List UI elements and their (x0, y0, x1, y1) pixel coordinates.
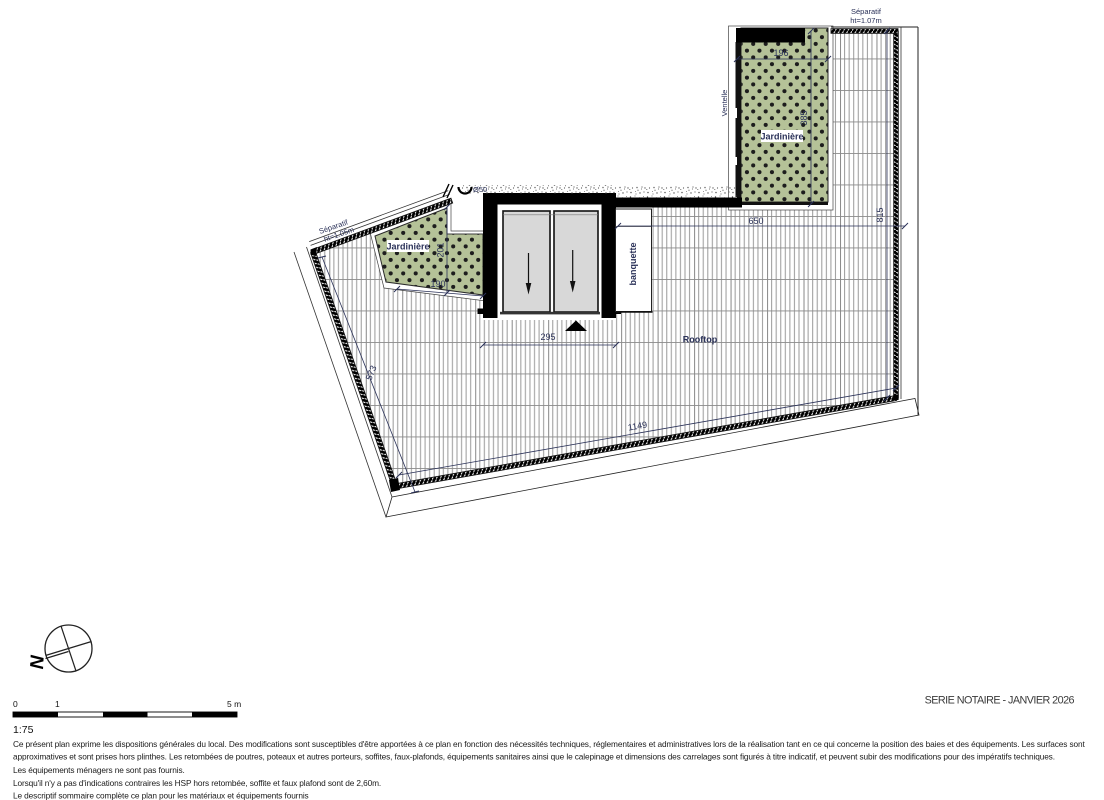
svg-text:295: 295 (540, 332, 555, 342)
svg-text:Ce présent plan exprime les di: Ce présent plan exprime les dispositions… (13, 739, 1085, 749)
svg-text:SERIE NOTAIRE - JANVIER 2026: SERIE NOTAIRE - JANVIER 2026 (925, 695, 1075, 707)
svg-text:Les équipements ménagers ne so: Les équipements ménagers ne sont pas fou… (13, 765, 185, 775)
svg-text:banquette: banquette (628, 242, 638, 285)
svg-text:385: 385 (799, 110, 809, 125)
svg-text:650: 650 (748, 216, 763, 226)
svg-text:Séparatif: Séparatif (851, 7, 882, 16)
svg-text:0: 0 (13, 699, 18, 709)
svg-text:201: 201 (436, 242, 446, 257)
svg-text:ht=1.07m: ht=1.07m (850, 16, 881, 25)
svg-text:Ventelle: Ventelle (720, 90, 729, 117)
svg-text:Ø50: Ø50 (473, 185, 487, 194)
svg-text:Le descriptif sommaire complèt: Le descriptif sommaire complète ce plan … (13, 791, 309, 800)
svg-text:815: 815 (875, 207, 885, 222)
svg-text:5 m: 5 m (227, 699, 241, 709)
svg-text:approximatives et sont prises: approximatives et sont prises hors plint… (13, 752, 1055, 762)
svg-text:Lorsqu'il n'y a pas d'indicati: Lorsqu'il n'y a pas d'indications contra… (13, 778, 381, 788)
svg-text:190: 190 (430, 279, 445, 289)
svg-text:196: 196 (773, 48, 788, 58)
svg-text:Jardinière: Jardinière (386, 242, 429, 252)
svg-text:Jardinière: Jardinière (760, 132, 803, 142)
svg-text:1:75: 1:75 (13, 724, 34, 736)
svg-text:1: 1 (55, 699, 60, 709)
svg-text:N: N (27, 654, 49, 670)
svg-text:Rooftop: Rooftop (683, 335, 718, 345)
